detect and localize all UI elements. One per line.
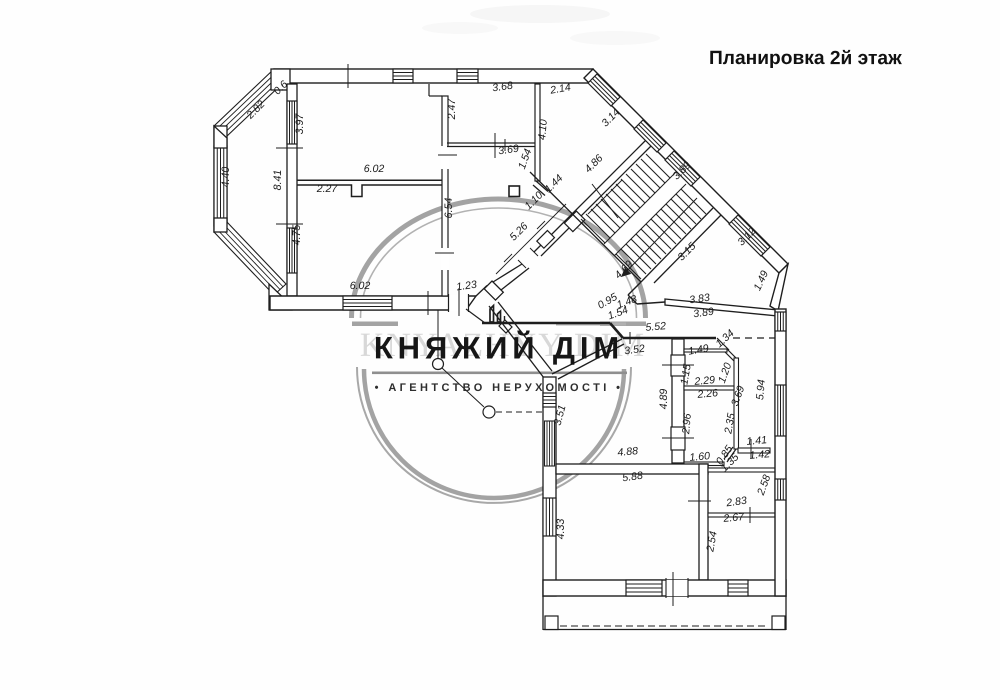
svg-text:• АГЕНТСТВО НЕРУХОМОСТІ •: • АГЕНТСТВО НЕРУХОМОСТІ • <box>375 382 624 394</box>
svg-text:6.02: 6.02 <box>350 280 371 292</box>
svg-text:5.94: 5.94 <box>754 379 768 401</box>
svg-text:4.10: 4.10 <box>536 119 550 141</box>
svg-text:4.33: 4.33 <box>555 519 567 540</box>
svg-text:2.27: 2.27 <box>316 183 339 195</box>
svg-text:2.26: 2.26 <box>696 387 719 401</box>
svg-text:Планировка 2й этаж: Планировка 2й этаж <box>709 48 902 69</box>
svg-text:4.40: 4.40 <box>220 167 232 188</box>
svg-text:4.89: 4.89 <box>658 389 670 410</box>
svg-text:КНЯЖИЙ ДІМ: КНЯЖИЙ ДІМ <box>374 329 624 365</box>
svg-text:6.02: 6.02 <box>364 163 385 175</box>
svg-text:4.75: 4.75 <box>291 225 303 246</box>
svg-text:2.47: 2.47 <box>446 98 458 121</box>
svg-text:2.96: 2.96 <box>680 413 694 436</box>
svg-text:1.60: 1.60 <box>689 450 711 464</box>
svg-text:5.52: 5.52 <box>645 320 667 334</box>
svg-text:1.42: 1.42 <box>749 448 771 462</box>
svg-text:6.54: 6.54 <box>443 198 455 219</box>
svg-text:4.88: 4.88 <box>617 445 639 459</box>
svg-text:2.67: 2.67 <box>722 511 746 525</box>
svg-text:2.29: 2.29 <box>693 374 716 388</box>
svg-text:1.41: 1.41 <box>746 434 768 448</box>
svg-text:3.97: 3.97 <box>294 113 306 135</box>
svg-text:8.41: 8.41 <box>272 170 284 191</box>
